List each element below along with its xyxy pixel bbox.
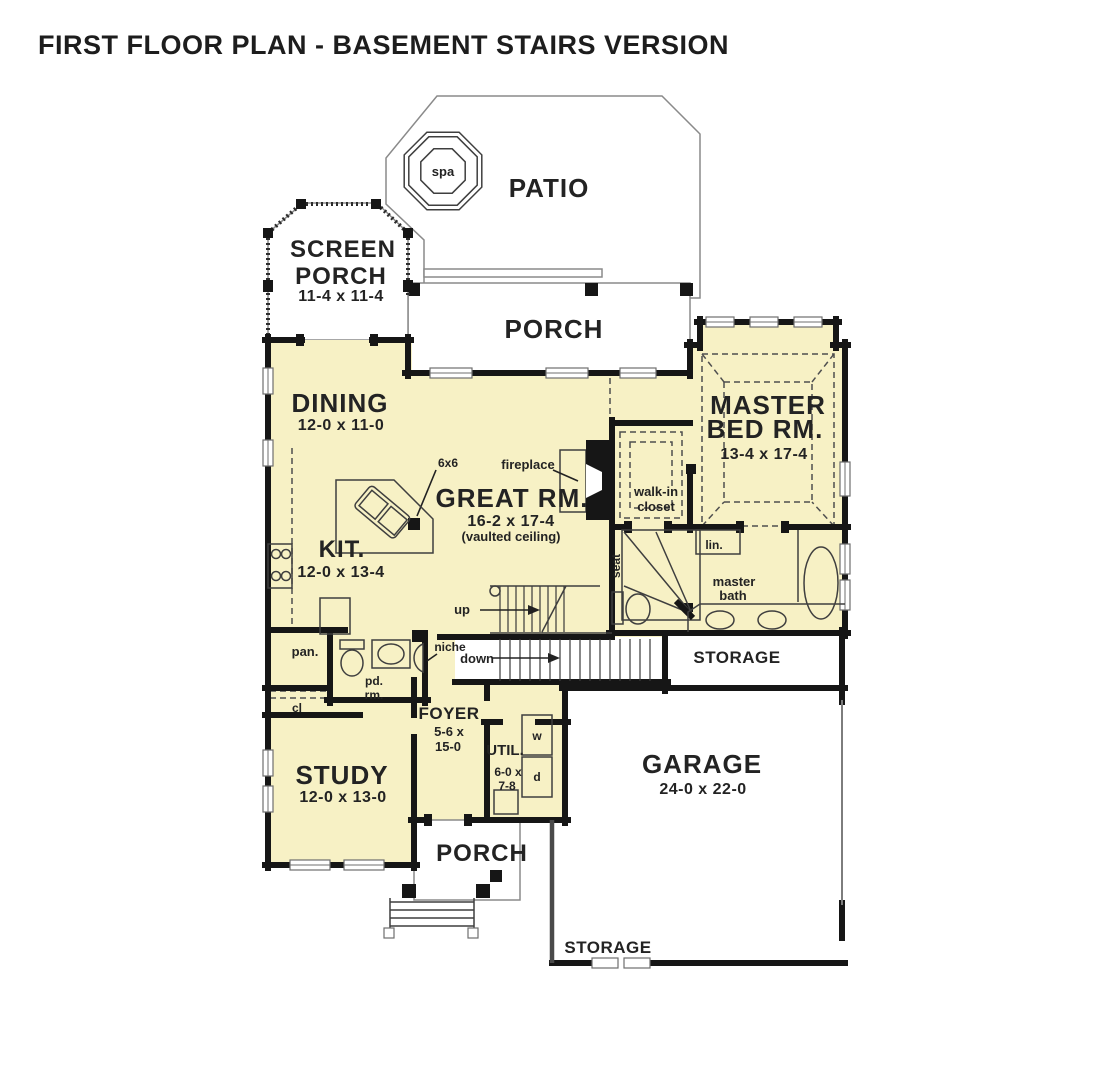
porch-column <box>585 283 598 296</box>
master-bath-label-2: bath <box>719 588 747 603</box>
kitchen-label: KIT. <box>319 536 366 563</box>
storage-mid-area: STORAGE <box>665 633 842 688</box>
floor-plan-drawing: spa PATIO PORCH SCREEN PORCH 11-4 x 11-4 <box>0 0 1100 1083</box>
porch-column <box>476 884 490 898</box>
master-bed-dims: 13-4 x 17-4 <box>720 446 807 463</box>
stairs-up-label: up <box>454 602 470 617</box>
niche-label: niche <box>434 640 466 654</box>
garage-dims: 24-0 x 22-0 <box>659 781 746 798</box>
foyer-dims-2: 15-0 <box>435 739 461 754</box>
study-dims: 12-0 x 13-0 <box>299 789 386 806</box>
study-label: STUDY <box>295 760 388 790</box>
fireplace-label: fireplace <box>501 457 554 472</box>
washer-label: w <box>531 729 542 743</box>
seat-label: seat <box>609 554 623 578</box>
closet-label: cl <box>292 701 302 715</box>
screen-porch-area: SCREEN PORCH 11-4 x 11-4 <box>263 199 413 340</box>
porch-column <box>402 884 416 898</box>
garage-label: GARAGE <box>642 749 762 779</box>
foyer-label: FOYER <box>418 704 479 723</box>
rear-porch-area: PORCH <box>407 283 693 373</box>
dining-label: DINING <box>292 388 389 418</box>
master-bed-label-2: BED RM. <box>707 414 824 444</box>
linen-label: lin. <box>705 538 722 552</box>
post-label: 6x6 <box>438 456 458 470</box>
patio-area: spa PATIO <box>386 96 700 298</box>
walk-in-closet-label-2: closet <box>637 499 675 514</box>
foyer-dims-1: 5-6 x <box>434 724 464 739</box>
dining-dims: 12-0 x 11-0 <box>298 417 384 434</box>
floor-plan-page: FIRST FLOOR PLAN - BASEMENT STAIRS VERSI… <box>0 0 1100 1083</box>
storage-mid-label: STORAGE <box>693 648 780 667</box>
utility-dims-2: 7-8 <box>498 779 516 793</box>
great-room-note: (vaulted ceiling) <box>462 529 561 544</box>
powder-room-label-2: rm. <box>365 688 384 702</box>
utility-dims-1: 6-0 x <box>494 765 522 779</box>
walk-in-closet-label-1: walk-in <box>633 484 678 499</box>
rear-porch-label: PORCH <box>505 314 604 344</box>
screen-porch-dims: 11-4 x 11-4 <box>298 288 384 305</box>
kitchen-dims: 12-0 x 13-4 <box>297 564 384 581</box>
porch-post <box>490 870 502 882</box>
screen-porch-label-2: PORCH <box>295 263 387 290</box>
spa-label: spa <box>432 164 455 179</box>
garage-area: GARAGE 24-0 x 22-0 STORAGE <box>552 688 842 963</box>
utility-label: UTIL. <box>486 742 524 759</box>
great-room-label: GREAT RM. <box>436 483 589 513</box>
master-bath-label-1: master <box>713 574 756 589</box>
patio-label: PATIO <box>509 173 590 203</box>
front-steps <box>384 898 478 938</box>
dryer-label: d <box>533 770 540 784</box>
pantry-label: pan. <box>292 644 319 659</box>
storage-bottom-label: STORAGE <box>564 938 651 957</box>
screen-porch-label-1: SCREEN <box>290 236 396 263</box>
powder-room-label-1: pd. <box>365 674 383 688</box>
porch-column <box>680 283 693 296</box>
front-porch-label: PORCH <box>436 840 528 867</box>
great-room-dims: 16-2 x 17-4 <box>467 513 554 530</box>
